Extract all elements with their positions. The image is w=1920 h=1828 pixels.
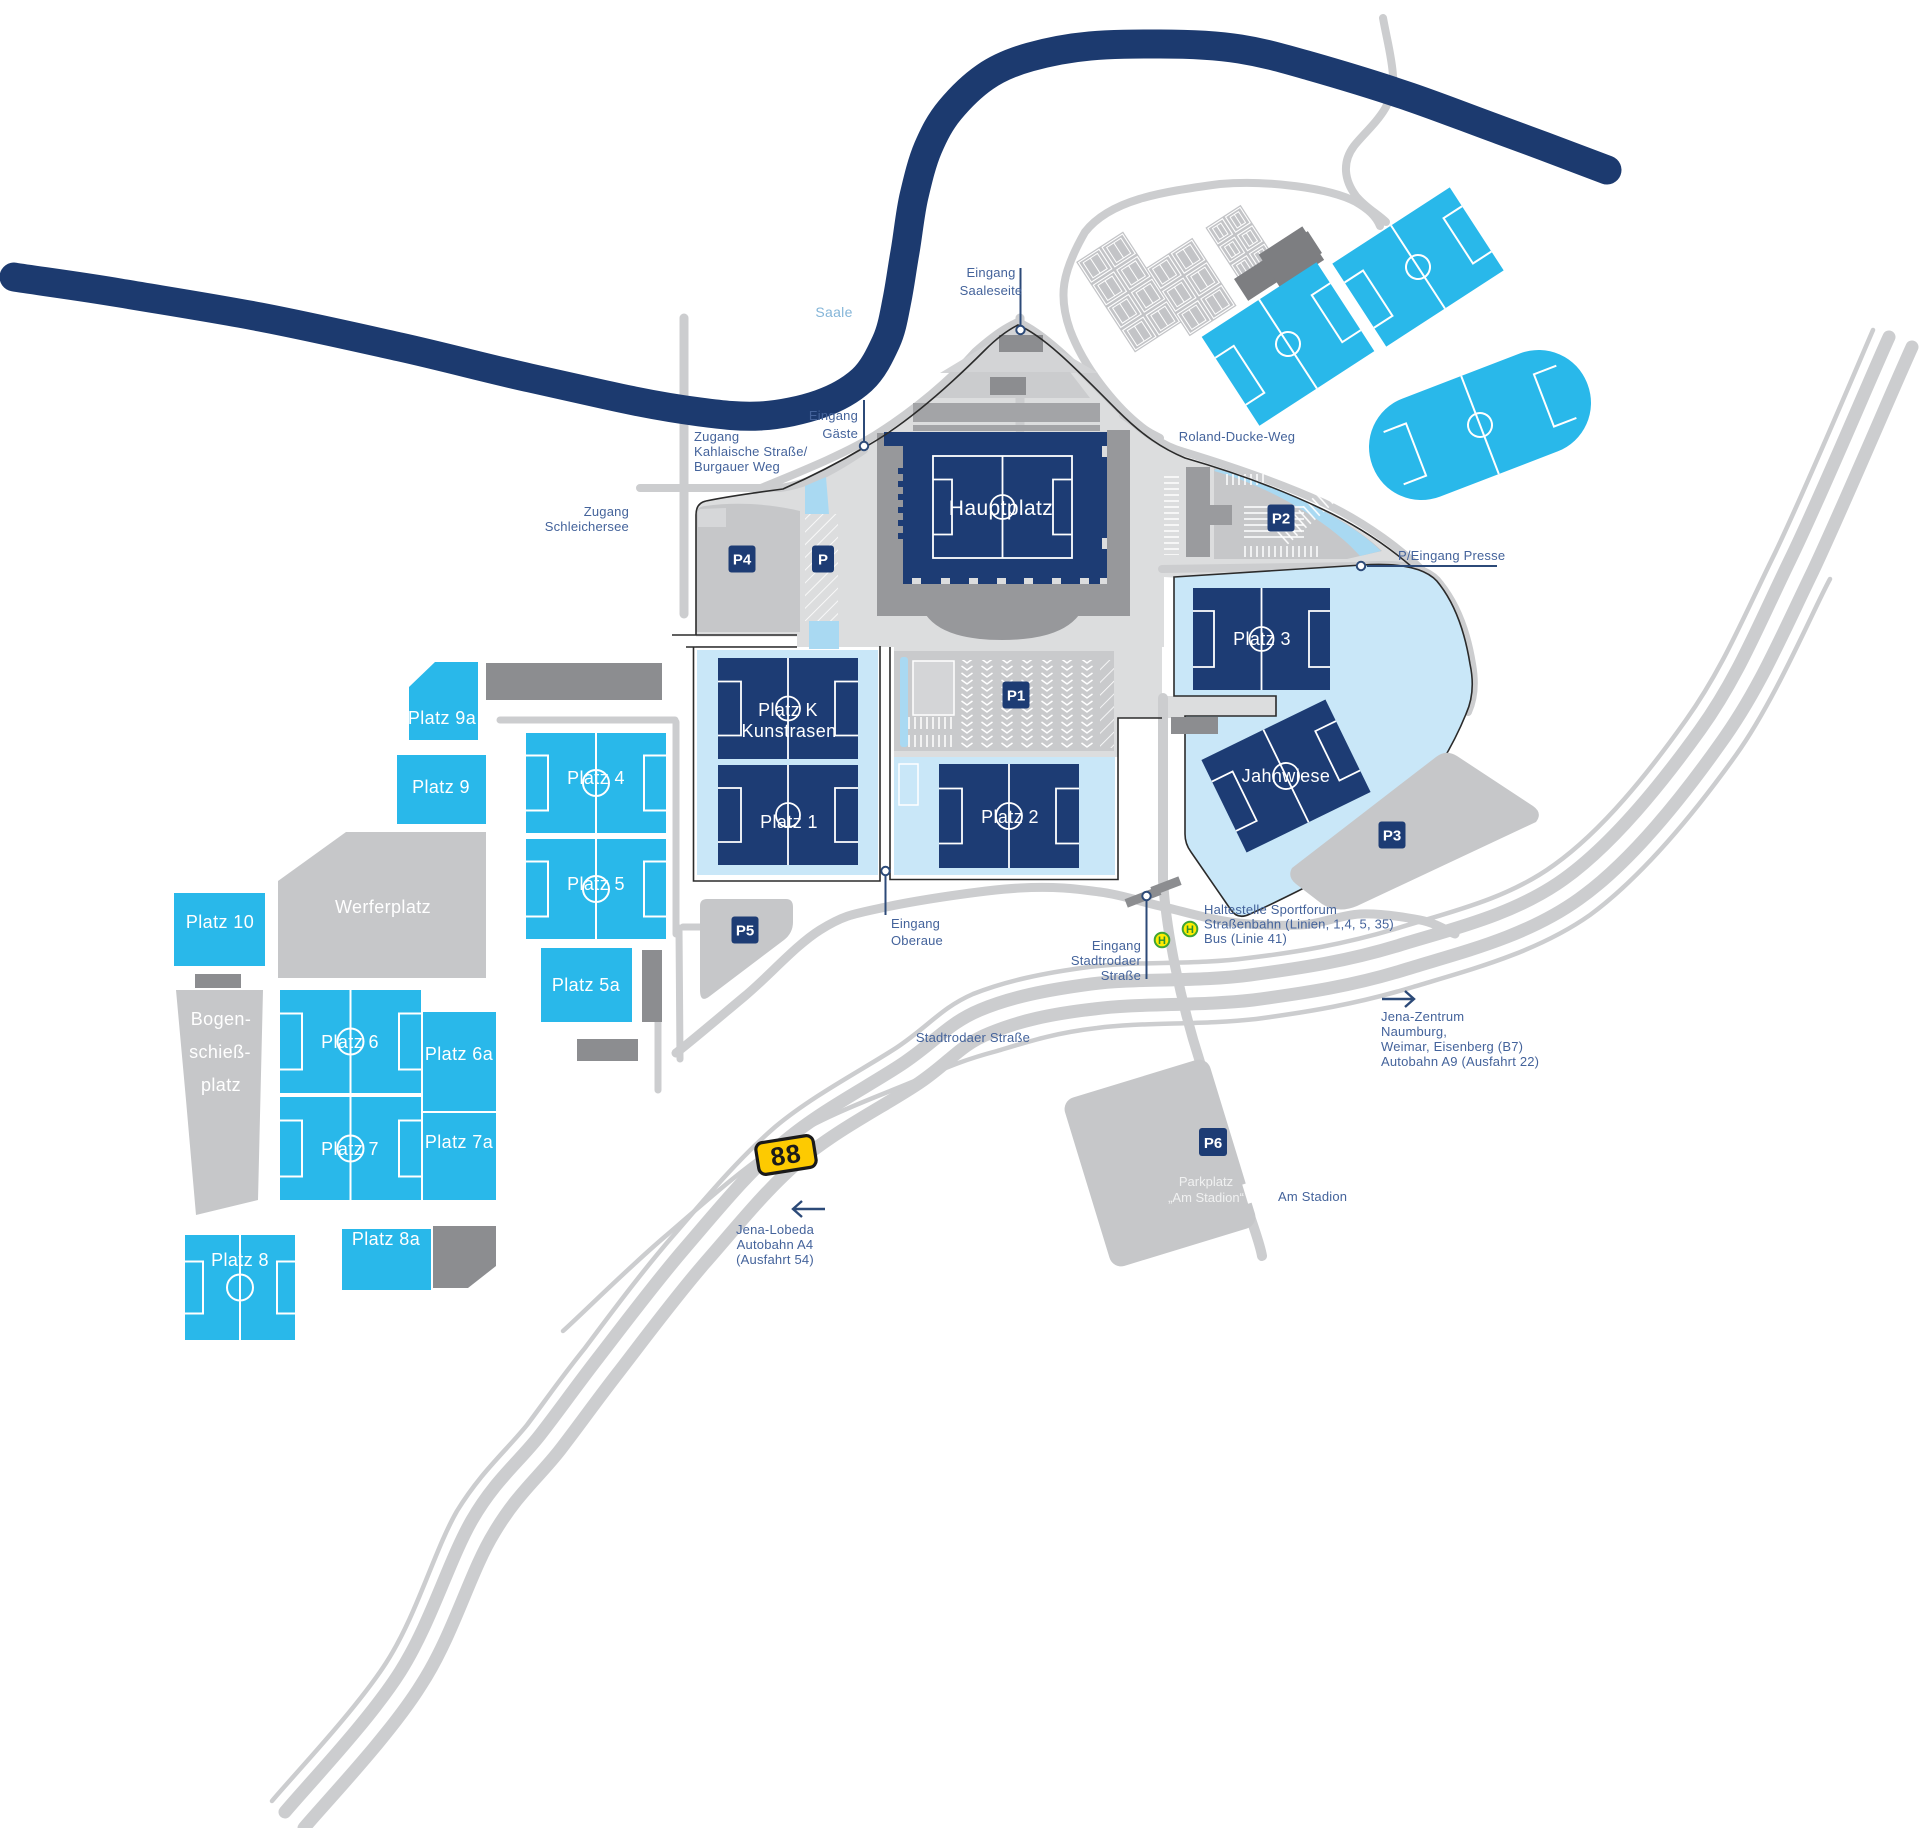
svg-text:88: 88 [768,1138,803,1172]
svg-text:Platz 8: Platz 8 [211,1250,269,1270]
svg-text:Platz 9a: Platz 9a [408,708,477,728]
svg-text:Straße: Straße [1101,968,1141,983]
svg-text:P: P [818,552,828,569]
svg-text:Bus (Linie 41): Bus (Linie 41) [1204,931,1287,946]
svg-text:Platz 1: Platz 1 [760,812,818,832]
svg-text:Zugang: Zugang [584,504,629,519]
svg-text:P5: P5 [736,923,754,940]
svg-text:Platz 8a: Platz 8a [352,1229,421,1249]
svg-text:platz: platz [201,1075,241,1095]
svg-text:Kahlaische Straße/: Kahlaische Straße/ [694,444,808,459]
svg-text:Oberaue: Oberaue [891,933,943,948]
svg-text:Platz 5a: Platz 5a [552,975,621,995]
svg-text:P3: P3 [1383,828,1401,845]
svg-text:Stadtrodaer: Stadtrodaer [1071,953,1142,968]
svg-text:P2: P2 [1272,511,1290,528]
svg-text:Werferplatz: Werferplatz [335,897,431,917]
svg-text:Eingang: Eingang [1092,938,1141,953]
svg-text:Jena-Lobeda: Jena-Lobeda [736,1222,815,1237]
svg-text:Platz 6: Platz 6 [321,1032,379,1052]
svg-text:Zugang: Zugang [694,429,739,444]
svg-text:Platz 10: Platz 10 [186,912,254,932]
svg-text:Platz 2: Platz 2 [981,807,1039,827]
svg-text:Platz K: Platz K [758,700,818,720]
svg-text:Kunstrasen: Kunstrasen [741,721,836,741]
svg-text:Platz 9: Platz 9 [412,777,470,797]
svg-text:Weimar, Eisenberg (B7): Weimar, Eisenberg (B7) [1381,1039,1523,1054]
svg-text:Saaleseite: Saaleseite [960,283,1023,298]
svg-text:Platz 4: Platz 4 [567,768,625,788]
svg-text:Schleichersee: Schleichersee [545,519,629,534]
svg-text:Parkplatz: Parkplatz [1179,1174,1233,1189]
svg-text:Platz 7a: Platz 7a [425,1132,494,1152]
svg-text:(Ausfahrt 54): (Ausfahrt 54) [736,1252,814,1267]
svg-text:Eingang: Eingang [891,916,940,931]
svg-text:H: H [1158,935,1166,947]
svg-text:„Am Stadion“: „Am Stadion“ [1168,1190,1244,1205]
svg-text:Platz 6a: Platz 6a [425,1044,494,1064]
svg-text:schieß-: schieß- [189,1042,251,1062]
svg-text:Eingang: Eingang [809,408,858,423]
svg-text:P1: P1 [1007,688,1025,705]
svg-text:Jahnwiese: Jahnwiese [1242,766,1331,786]
svg-text:Eingang: Eingang [966,265,1015,280]
svg-text:Roland-Ducke-Weg: Roland-Ducke-Weg [1179,429,1295,444]
svg-text:Autobahn A9 (Ausfahrt 22): Autobahn A9 (Ausfahrt 22) [1381,1054,1539,1069]
svg-text:Saale: Saale [815,304,852,320]
svg-text:Stadtrodaer Straße: Stadtrodaer Straße [916,1030,1030,1045]
svg-text:H: H [1186,924,1194,936]
svg-text:Jena-Zentrum: Jena-Zentrum [1381,1009,1464,1024]
svg-text:Platz 5: Platz 5 [567,874,625,894]
svg-text:Bogen-: Bogen- [191,1009,251,1029]
svg-text:Gäste: Gäste [822,426,858,441]
svg-text:P4: P4 [733,552,752,569]
svg-text:Naumburg,: Naumburg, [1381,1024,1447,1039]
svg-text:Platz 7: Platz 7 [321,1139,379,1159]
svg-text:Platz 3: Platz 3 [1233,629,1291,649]
svg-text:P/Eingang Presse: P/Eingang Presse [1398,548,1505,563]
svg-text:Am Stadion: Am Stadion [1278,1189,1347,1204]
svg-text:Straßenbahn (Linien, 1,4, 5, 3: Straßenbahn (Linien, 1,4, 5, 35) [1204,917,1394,932]
svg-text:Burgauer Weg: Burgauer Weg [694,459,780,474]
svg-text:Autobahn A4: Autobahn A4 [737,1237,814,1252]
svg-text:Haltestelle Sportforum: Haltestelle Sportforum [1204,902,1337,917]
svg-text:Hauptplatz: Hauptplatz [949,497,1053,520]
svg-text:P6: P6 [1204,1135,1222,1152]
